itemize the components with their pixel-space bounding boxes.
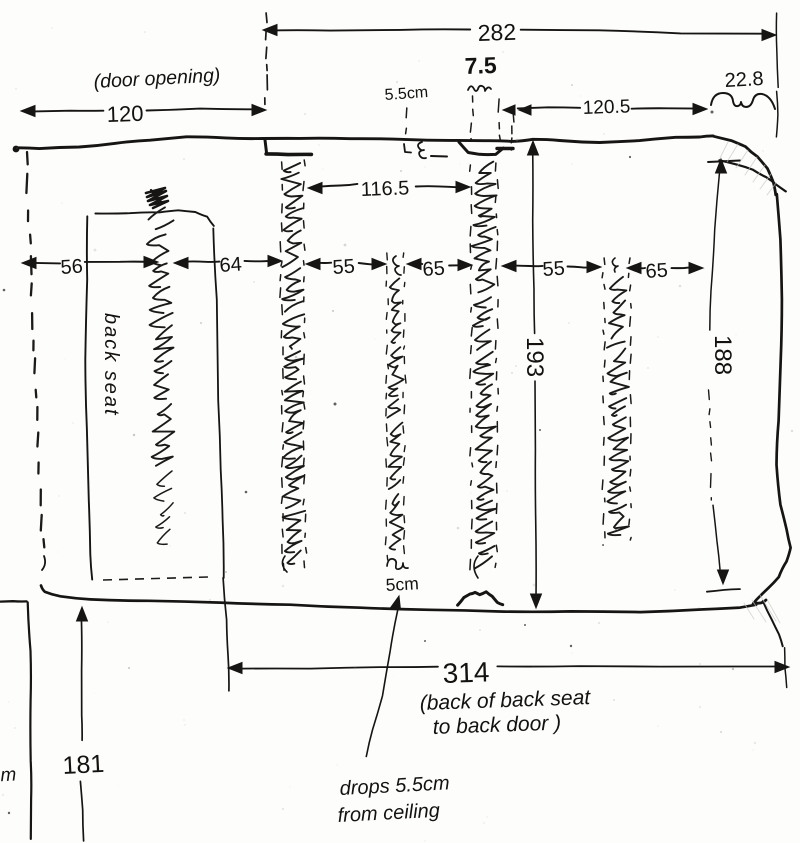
svg-text:from ceiling: from ceiling — [337, 800, 440, 827]
svg-text:314: 314 — [442, 656, 490, 689]
svg-text:to back door ): to back door ) — [432, 712, 561, 739]
svg-text:(door opening): (door opening) — [93, 64, 221, 93]
svg-text:120.5: 120.5 — [582, 96, 630, 119]
svg-text:188: 188 — [709, 335, 736, 375]
svg-text:65: 65 — [422, 257, 446, 280]
svg-text:drops 5.5cm: drops 5.5cm — [339, 772, 450, 800]
svg-text:(back of back seat: (back of back seat — [419, 686, 591, 715]
svg-text:22.8: 22.8 — [724, 68, 764, 92]
svg-text:c m: c m — [0, 764, 17, 787]
svg-text:7.5: 7.5 — [464, 52, 497, 79]
svg-text:56: 56 — [60, 255, 84, 278]
svg-text:back seat: back seat — [100, 313, 122, 417]
svg-text:120: 120 — [106, 101, 144, 127]
svg-text:181: 181 — [62, 750, 105, 780]
svg-text:65: 65 — [645, 259, 669, 282]
svg-text:282: 282 — [477, 19, 516, 46]
svg-text:5.5cm: 5.5cm — [384, 84, 429, 104]
svg-text:55: 55 — [332, 255, 356, 278]
svg-text:55: 55 — [542, 257, 566, 280]
svg-text:5cm: 5cm — [385, 573, 419, 595]
svg-text:116.5: 116.5 — [360, 177, 409, 201]
svg-text:193: 193 — [521, 337, 548, 377]
svg-text:64: 64 — [219, 253, 243, 276]
